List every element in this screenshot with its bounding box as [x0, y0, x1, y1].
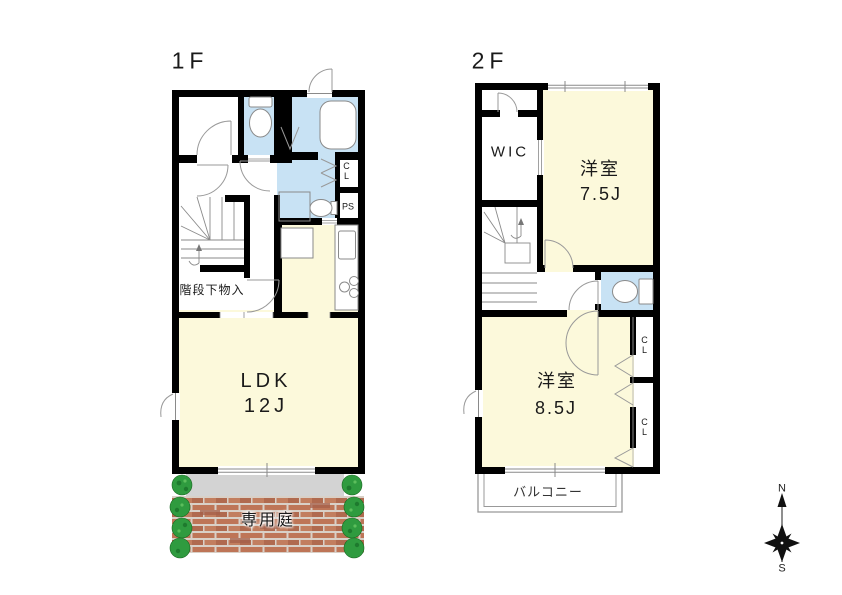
compass-north-label: N [778, 484, 786, 495]
bedroom1-size: 7.5J [580, 185, 622, 203]
closet2-label-2f: CL [640, 417, 649, 437]
compass-arrow-icon [778, 493, 787, 507]
balcony-label: バルコニー [513, 486, 583, 499]
closet1-label-2f: CL [640, 335, 649, 355]
fixtures-2f [613, 279, 654, 304]
walk-in-closet-label: WIC [491, 145, 529, 160]
kitchen-counter [335, 225, 359, 310]
ldk-room-name: LDK [241, 371, 292, 391]
closet-label-1f: CL [342, 161, 351, 181]
ldk-room-size: 12J [244, 396, 288, 416]
toilet-icon-1f [249, 97, 272, 137]
bedroom2-size: 8.5J [535, 399, 577, 417]
floor-plan-drawing [0, 0, 842, 595]
compass-south-label: S [778, 564, 785, 575]
under-stair-storage-label: 階段下物入 [179, 284, 244, 296]
kitchen-sink [339, 231, 356, 259]
bedroom1-name: 洋室 [580, 160, 620, 178]
staircase-2f [482, 207, 537, 302]
garden-terrace [186, 474, 344, 498]
floor-2f-title: 2F [472, 50, 509, 73]
washbasin-icon [310, 200, 337, 217]
bathtub-icon [320, 101, 356, 149]
floor-1f-title: 1F [172, 50, 209, 73]
private-garden-label: 専用庭 [241, 513, 295, 529]
compass-rose [764, 493, 800, 562]
staircase-1f [181, 197, 244, 265]
pipe-space-label: PS [342, 203, 354, 212]
floor-plan-page: 1F 2F LDK 12J 階段下物入 CL PS 専用庭 WIC 洋室 7.5… [0, 0, 842, 595]
toilet-icon-2f [613, 279, 654, 304]
bedroom2-name: 洋室 [537, 372, 577, 390]
refrigerator-space [281, 228, 313, 258]
